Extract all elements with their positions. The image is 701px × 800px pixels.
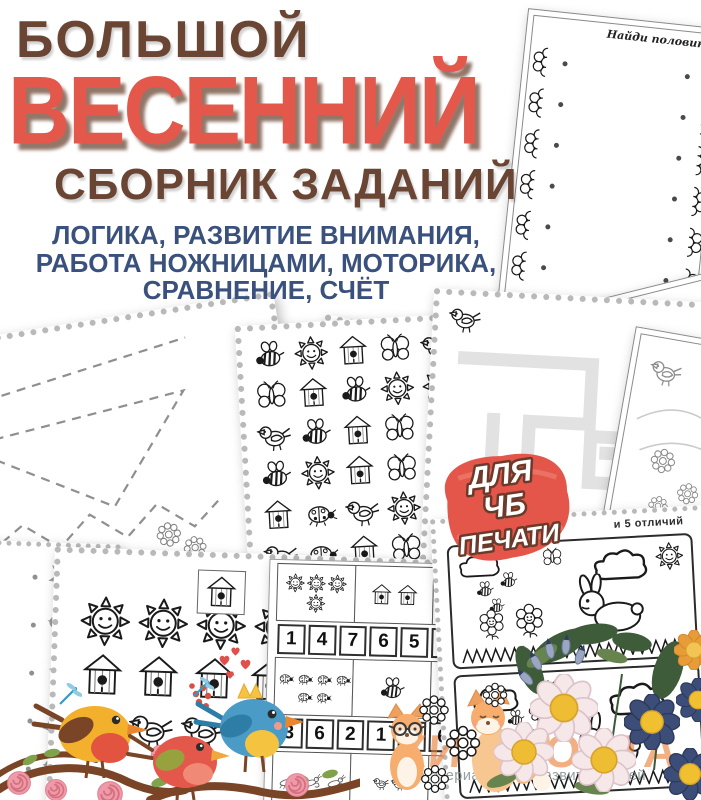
find-halves-rows — [506, 40, 701, 305]
flower-half-left — [515, 166, 535, 202]
flower-half-left — [524, 84, 544, 120]
flower-bouquet — [472, 612, 701, 800]
flower-doodle-icon — [420, 696, 448, 724]
title-line-3: СБОРНИК ЗАДАНИЙ — [54, 160, 518, 210]
match-dot — [667, 237, 672, 242]
bird-icon — [256, 417, 292, 453]
rose-icon — [286, 774, 309, 797]
sun-icon — [306, 593, 325, 612]
picture-cell — [276, 563, 356, 623]
match-dot — [685, 74, 690, 79]
subtitle-line-2: РАБОТА НОЖНИЦАМИ, МОТОРИКА, — [6, 250, 526, 278]
match-dot — [31, 622, 36, 627]
decorative-birds — [0, 632, 360, 800]
flower-half-right — [695, 143, 701, 179]
flower-icon — [528, 43, 548, 79]
worksheet-find-halves: Найди половинки — [497, 8, 701, 326]
birdhouse-icon — [369, 582, 394, 607]
flower-half-left — [528, 43, 548, 79]
bw-print-badge: ДЛЯ ЧБ ПЕЧАТИ — [427, 442, 584, 580]
navy-flower-icon — [664, 748, 701, 800]
promo-cover: Найди половинки веди букву, на кото назв… — [0, 0, 701, 800]
butterfly-icon — [377, 330, 413, 366]
heart-icon — [220, 656, 230, 666]
match-dot — [676, 155, 681, 160]
sun-icon — [307, 573, 326, 592]
rose-icon — [8, 772, 31, 795]
match-dot — [32, 574, 37, 579]
butterfly-icon — [382, 410, 418, 446]
sun-icon — [286, 573, 305, 592]
flower-half-right — [687, 225, 701, 261]
number-cell: 5 — [400, 627, 429, 658]
flower-icon — [687, 225, 701, 261]
rose-icon — [98, 782, 123, 800]
cloud-icon — [594, 549, 646, 579]
sun-face-icon — [655, 542, 683, 570]
match-dot — [545, 224, 550, 229]
dragonfly-icon — [194, 676, 215, 696]
flower-icon — [519, 125, 539, 161]
birdhouse-icon — [395, 583, 420, 608]
sun-icon — [386, 490, 422, 526]
rose-icon — [46, 780, 67, 800]
flower-half-left — [519, 125, 539, 161]
match-dot — [672, 196, 677, 201]
birdhouse-icon — [260, 497, 296, 533]
white-daisy-icon — [572, 728, 637, 793]
sun-icon — [300, 455, 336, 491]
match-dot — [562, 61, 567, 66]
match-dot — [554, 143, 559, 148]
flower-doodle-icon — [422, 766, 449, 793]
bee-icon — [258, 457, 294, 493]
flower-doodle-icon — [155, 521, 182, 548]
heart-icon — [241, 660, 251, 670]
heart-icon — [231, 648, 239, 656]
bird-icon — [344, 492, 380, 528]
flower-icon — [691, 184, 701, 220]
flower-icon — [524, 84, 544, 120]
subtitle-line-3: СРАВНЕНИЕ, СЧЁТ — [6, 277, 526, 305]
match-dot — [541, 265, 546, 270]
white-daisy-icon — [494, 722, 555, 783]
match-dot — [549, 183, 554, 188]
flower-icon — [695, 143, 701, 179]
birdhouse-icon — [342, 453, 378, 489]
flower-half-right — [691, 184, 701, 220]
birdhouse-icon — [335, 333, 371, 369]
sun-icon — [379, 370, 415, 406]
badge-line2: ЧБ — [481, 487, 528, 526]
bee-icon — [298, 415, 334, 451]
birdhouse-icon — [340, 413, 376, 449]
subtitle: ЛОГИКА, РАЗВИТИЕ ВНИМАНИЯ, РАБОТА НОЖНИЦ… — [6, 222, 526, 305]
navy-flower-icon — [676, 678, 701, 723]
butterfly-icon — [384, 450, 420, 486]
worksheet-title: и 5 отличий — [613, 515, 683, 531]
bee-icon — [338, 373, 374, 409]
heart-icon — [226, 671, 234, 678]
sun-icon — [328, 574, 347, 593]
bird-icon — [449, 309, 481, 333]
bee-icon — [476, 581, 493, 597]
crown-icon — [238, 684, 262, 698]
subtitle-line-1: ЛОГИКА, РАЗВИТИЕ ВНИМАНИЯ, — [6, 222, 526, 250]
framed-birdhouse — [197, 569, 247, 615]
navy-flower-icon — [624, 694, 681, 751]
number-cell: 6 — [369, 626, 398, 657]
sun-icon — [293, 335, 329, 371]
ladybug-icon — [302, 495, 338, 531]
dragonfly-icon — [61, 682, 84, 704]
match-dot — [680, 115, 685, 120]
title-line-2: ВЕСЕННИЙ — [8, 56, 479, 167]
birdhouse-icon — [203, 574, 240, 611]
picture-cell — [354, 565, 434, 625]
butterfly-icon — [254, 377, 290, 413]
bee-icon — [251, 337, 287, 373]
birdhouse-icon — [296, 375, 332, 411]
match-dot — [558, 102, 563, 107]
flower-icon — [515, 166, 535, 202]
